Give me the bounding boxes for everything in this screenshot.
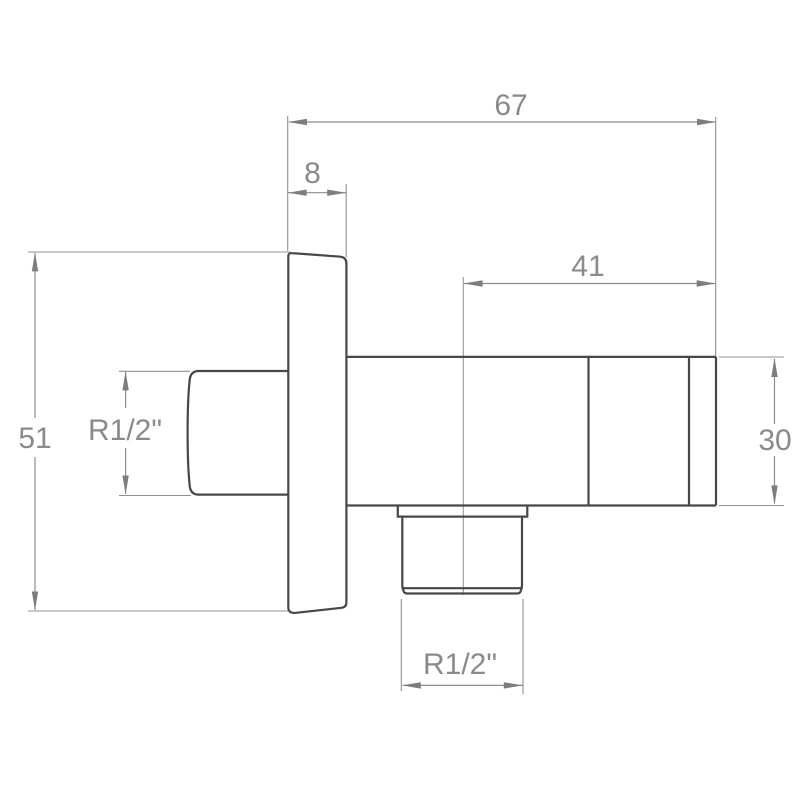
svg-text:41: 41 bbox=[571, 250, 604, 283]
svg-text:67: 67 bbox=[494, 89, 527, 122]
svg-text:8: 8 bbox=[304, 157, 321, 190]
svg-text:R1/2": R1/2" bbox=[88, 414, 162, 447]
svg-text:51: 51 bbox=[18, 422, 51, 455]
svg-text:R1/2": R1/2" bbox=[423, 648, 497, 681]
svg-text:30: 30 bbox=[758, 424, 791, 457]
